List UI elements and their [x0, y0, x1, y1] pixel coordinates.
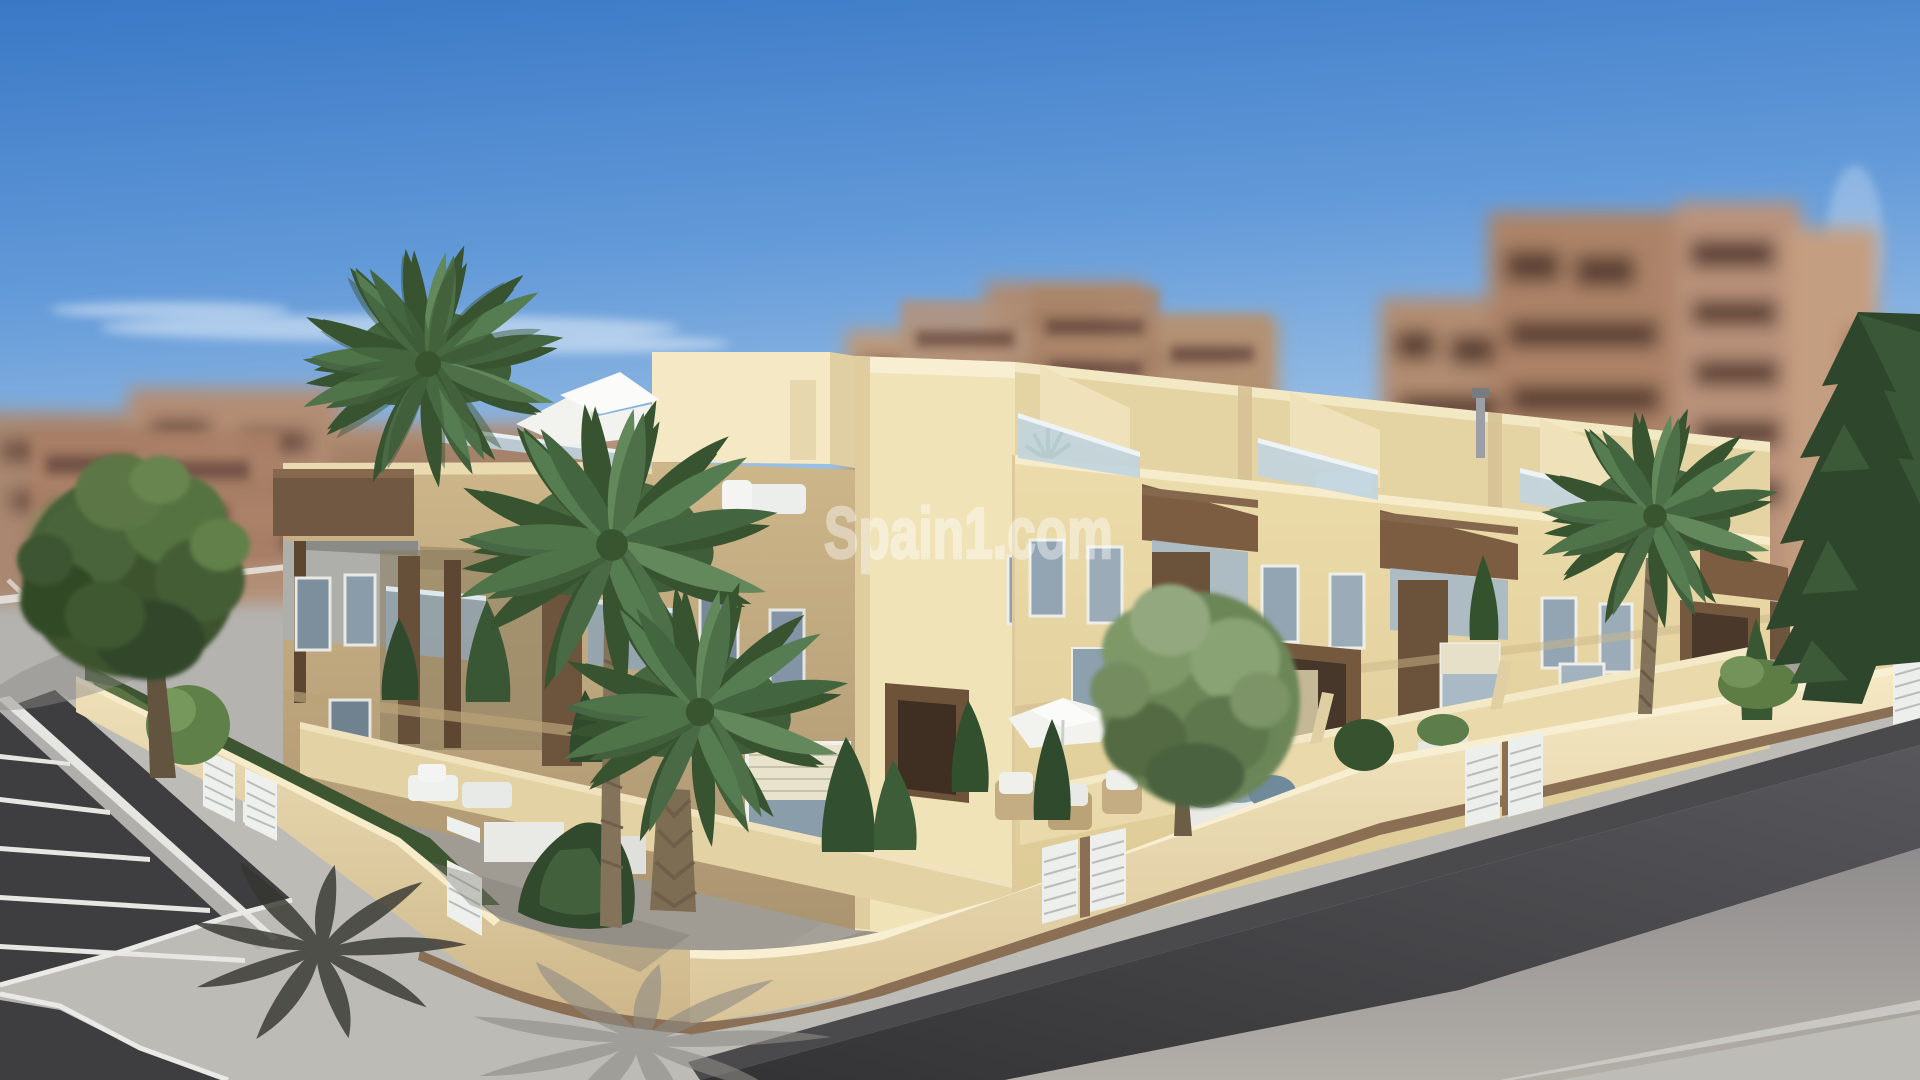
svg-text:Spain1.com: Spain1.com — [824, 494, 1113, 575]
